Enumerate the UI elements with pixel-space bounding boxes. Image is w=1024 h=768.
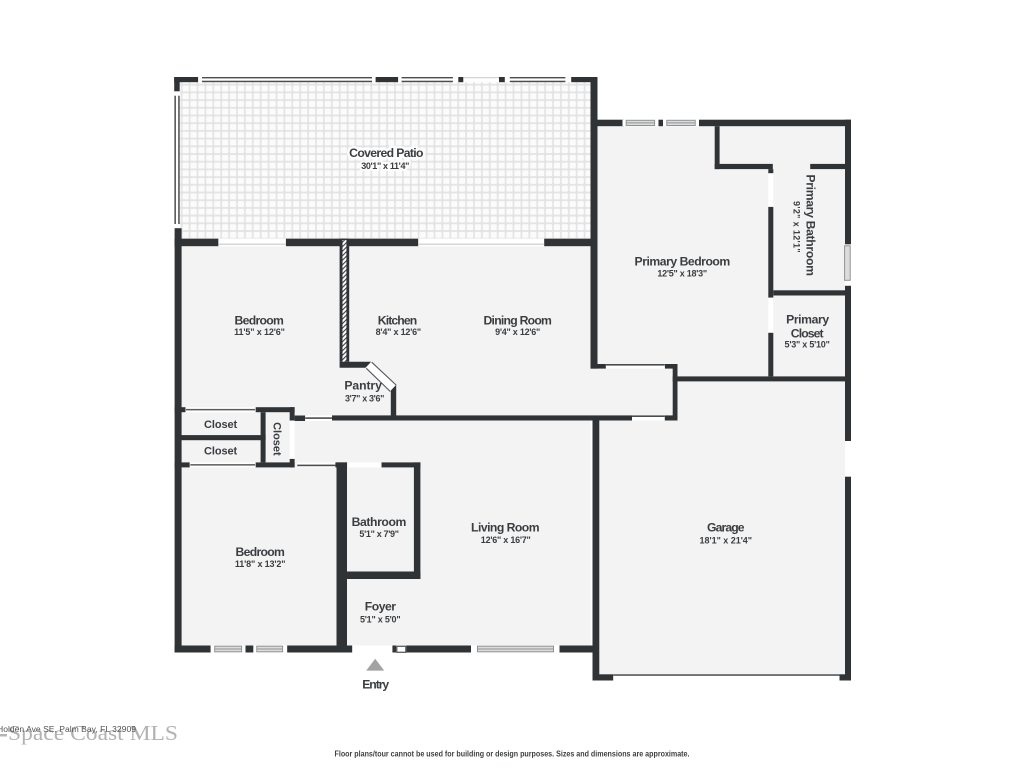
svg-text:Primary Bedroom: Primary Bedroom xyxy=(635,254,731,268)
svg-text:Closet: Closet xyxy=(791,326,824,340)
svg-text:Primary Bathroom: Primary Bathroom xyxy=(804,174,818,276)
svg-text:Primary: Primary xyxy=(786,312,829,326)
svg-text:5'1" x 7'9": 5'1" x 7'9" xyxy=(359,529,399,539)
svg-text:Holden Ave SE, Palm Bay, FL 32: Holden Ave SE, Palm Bay, FL 32909 xyxy=(0,725,137,734)
svg-text:Living Room: Living Room xyxy=(471,521,540,535)
svg-text:Kitchen: Kitchen xyxy=(378,314,417,328)
svg-text:Pantry: Pantry xyxy=(344,379,382,393)
svg-text:5'1" x 5'0": 5'1" x 5'0" xyxy=(360,614,401,624)
svg-text:Bedroom: Bedroom xyxy=(236,545,285,559)
svg-text:9'2" x 12'1": 9'2" x 12'1" xyxy=(792,201,802,253)
svg-text:Foyer: Foyer xyxy=(365,599,397,613)
svg-text:11'5" x 12'6": 11'5" x 12'6" xyxy=(234,327,285,337)
svg-text:Closet: Closet xyxy=(271,422,283,456)
svg-text:Closet: Closet xyxy=(204,419,238,431)
svg-text:18'1" x 21'4": 18'1" x 21'4" xyxy=(700,535,753,545)
svg-text:Covered Patio: Covered Patio xyxy=(349,146,423,160)
svg-text:Entry: Entry xyxy=(362,678,389,692)
svg-text:Garage: Garage xyxy=(707,521,745,535)
svg-text:11'8" x 13'2": 11'8" x 13'2" xyxy=(235,559,286,569)
svg-text:Floor plans/tour cannot be use: Floor plans/tour cannot be used for buil… xyxy=(335,749,690,758)
svg-text:30'1" x 11'4": 30'1" x 11'4" xyxy=(361,161,409,171)
svg-text:Closet: Closet xyxy=(204,446,238,458)
svg-text:5'3" x 5'10": 5'3" x 5'10" xyxy=(785,340,830,350)
svg-text:9'4" x 12'6": 9'4" x 12'6" xyxy=(495,327,540,337)
svg-text:3'7" x 3'6": 3'7" x 3'6" xyxy=(345,394,384,404)
svg-text:12'6" x 16'7": 12'6" x 16'7" xyxy=(481,535,531,545)
svg-text:Dining Room: Dining Room xyxy=(484,314,553,328)
svg-text:8'4" x 12'6": 8'4" x 12'6" xyxy=(376,327,422,337)
svg-text:Bathroom: Bathroom xyxy=(352,515,407,529)
svg-text:12'5" x 18'3": 12'5" x 18'3" xyxy=(657,268,707,278)
svg-text:Bedroom: Bedroom xyxy=(235,314,284,328)
